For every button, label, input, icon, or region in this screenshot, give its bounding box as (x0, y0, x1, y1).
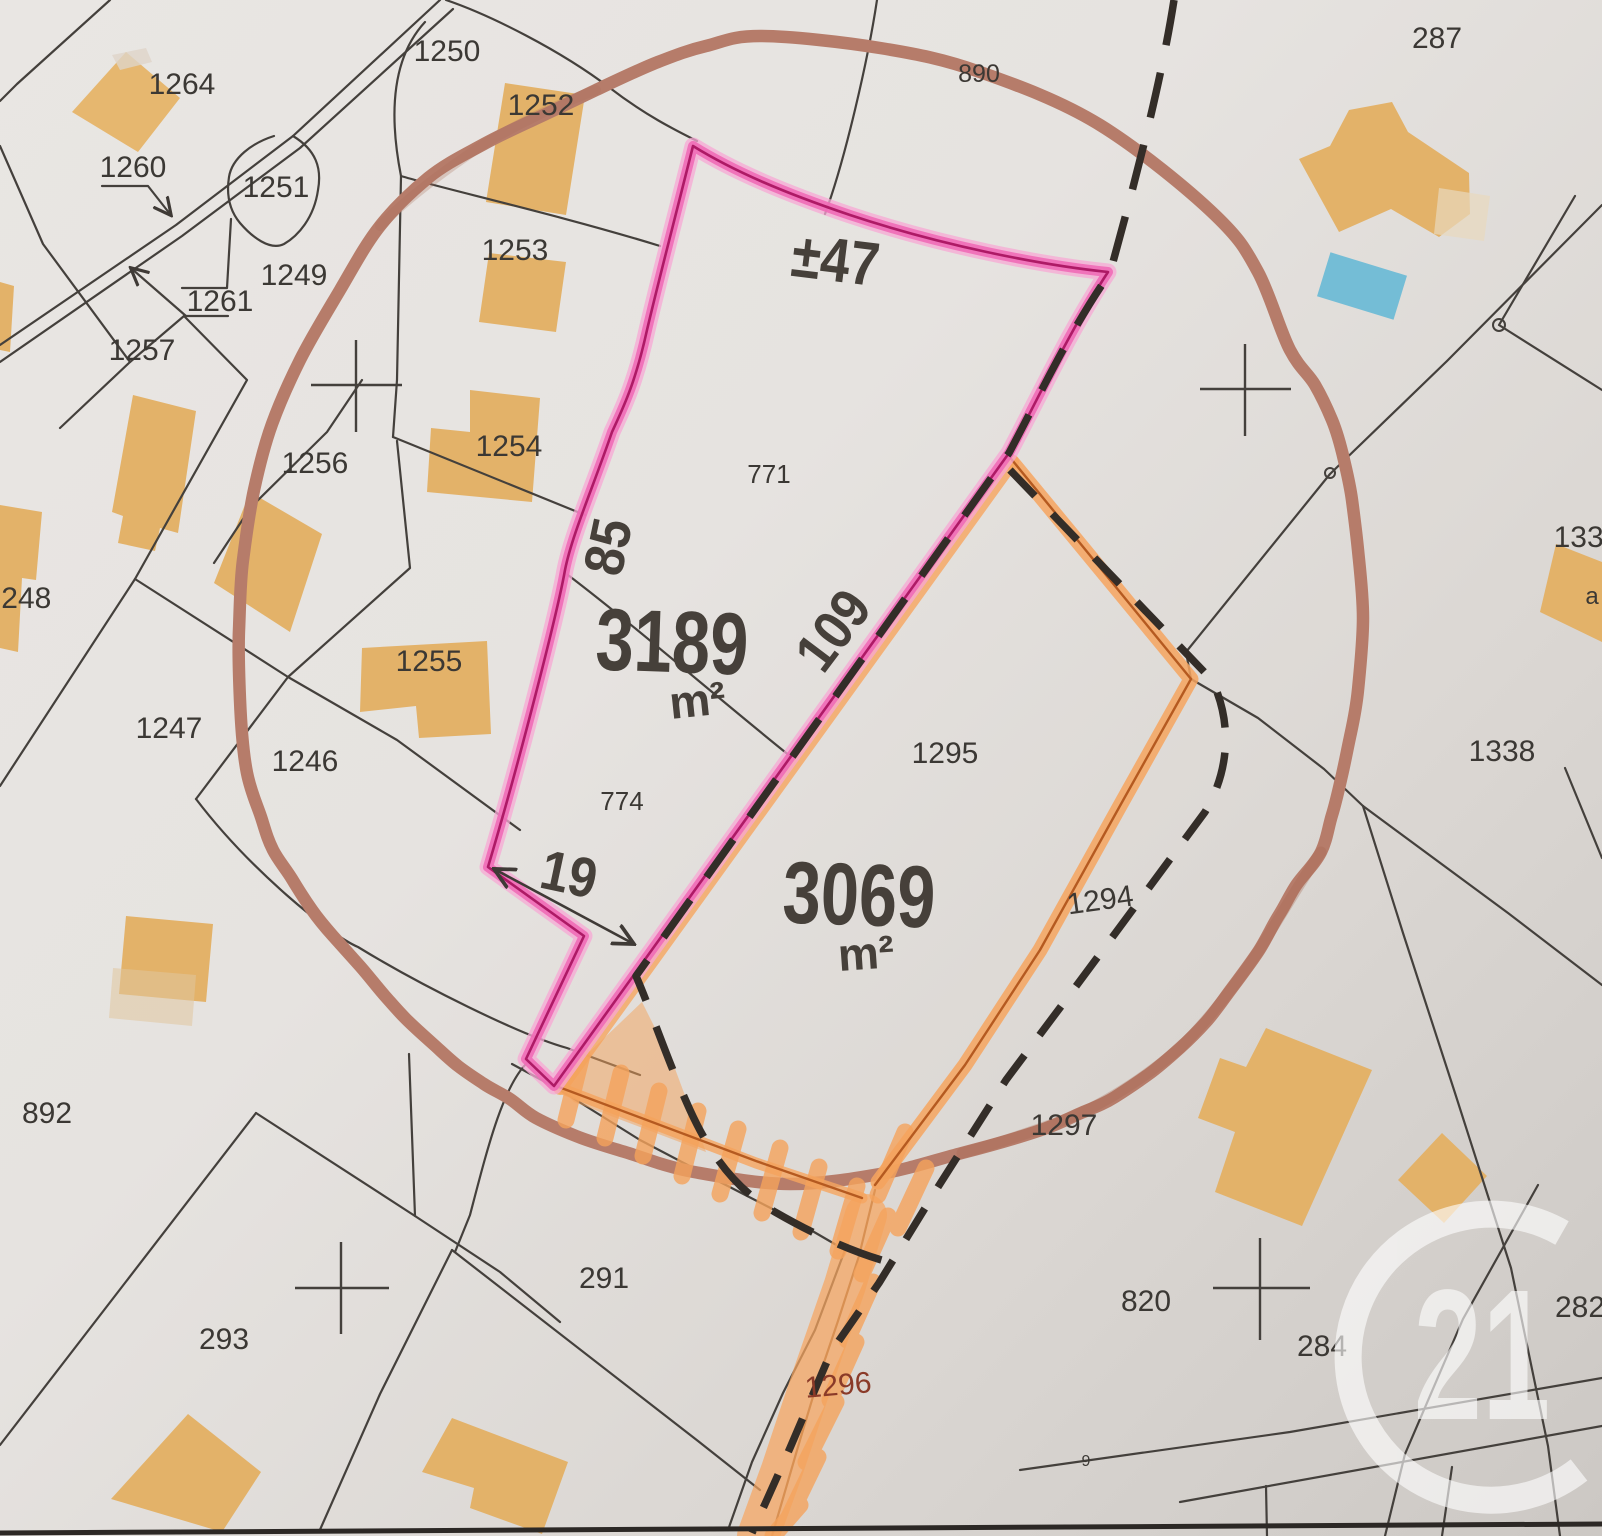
svg-text:21: 21 (1414, 1251, 1551, 1459)
svg-text:1261: 1261 (187, 285, 254, 318)
svg-text:287: 287 (1412, 22, 1462, 55)
svg-text:a: a (1585, 583, 1599, 610)
svg-text:1260: 1260 (100, 151, 167, 184)
svg-text:m²: m² (836, 925, 896, 981)
svg-text:1251: 1251 (243, 171, 310, 204)
svg-text:293: 293 (199, 1323, 249, 1356)
svg-text:85: 85 (572, 513, 644, 581)
svg-text:1256: 1256 (282, 447, 349, 480)
svg-text:1252: 1252 (508, 89, 575, 122)
svg-text:1249: 1249 (261, 259, 328, 292)
svg-text:19: 19 (535, 839, 603, 911)
svg-text:892: 892 (22, 1097, 72, 1130)
svg-text:±47: ±47 (788, 221, 883, 300)
svg-text:774: 774 (600, 786, 643, 816)
svg-text:1248: 1248 (0, 582, 51, 615)
svg-text:1246: 1246 (272, 745, 339, 778)
svg-text:291: 291 (579, 1262, 629, 1295)
svg-text:9: 9 (1082, 1453, 1091, 1470)
svg-text:282: 282 (1555, 1291, 1602, 1324)
svg-text:1247: 1247 (136, 712, 203, 745)
svg-text:1255: 1255 (396, 645, 463, 678)
svg-text:1264: 1264 (149, 68, 216, 101)
svg-text:1253: 1253 (482, 234, 549, 267)
svg-text:1297: 1297 (1031, 1109, 1098, 1142)
svg-text:1295: 1295 (912, 737, 979, 770)
svg-text:1254: 1254 (476, 430, 543, 463)
svg-text:1257: 1257 (109, 334, 176, 367)
svg-text:820: 820 (1121, 1285, 1171, 1318)
svg-text:1296: 1296 (803, 1366, 872, 1405)
svg-text:1338: 1338 (1469, 735, 1536, 768)
svg-text:1338: 1338 (1554, 521, 1602, 554)
svg-text:m²: m² (667, 671, 728, 729)
svg-text:1250: 1250 (414, 35, 481, 68)
svg-text:890: 890 (958, 60, 1000, 88)
svg-text:771: 771 (747, 459, 790, 489)
